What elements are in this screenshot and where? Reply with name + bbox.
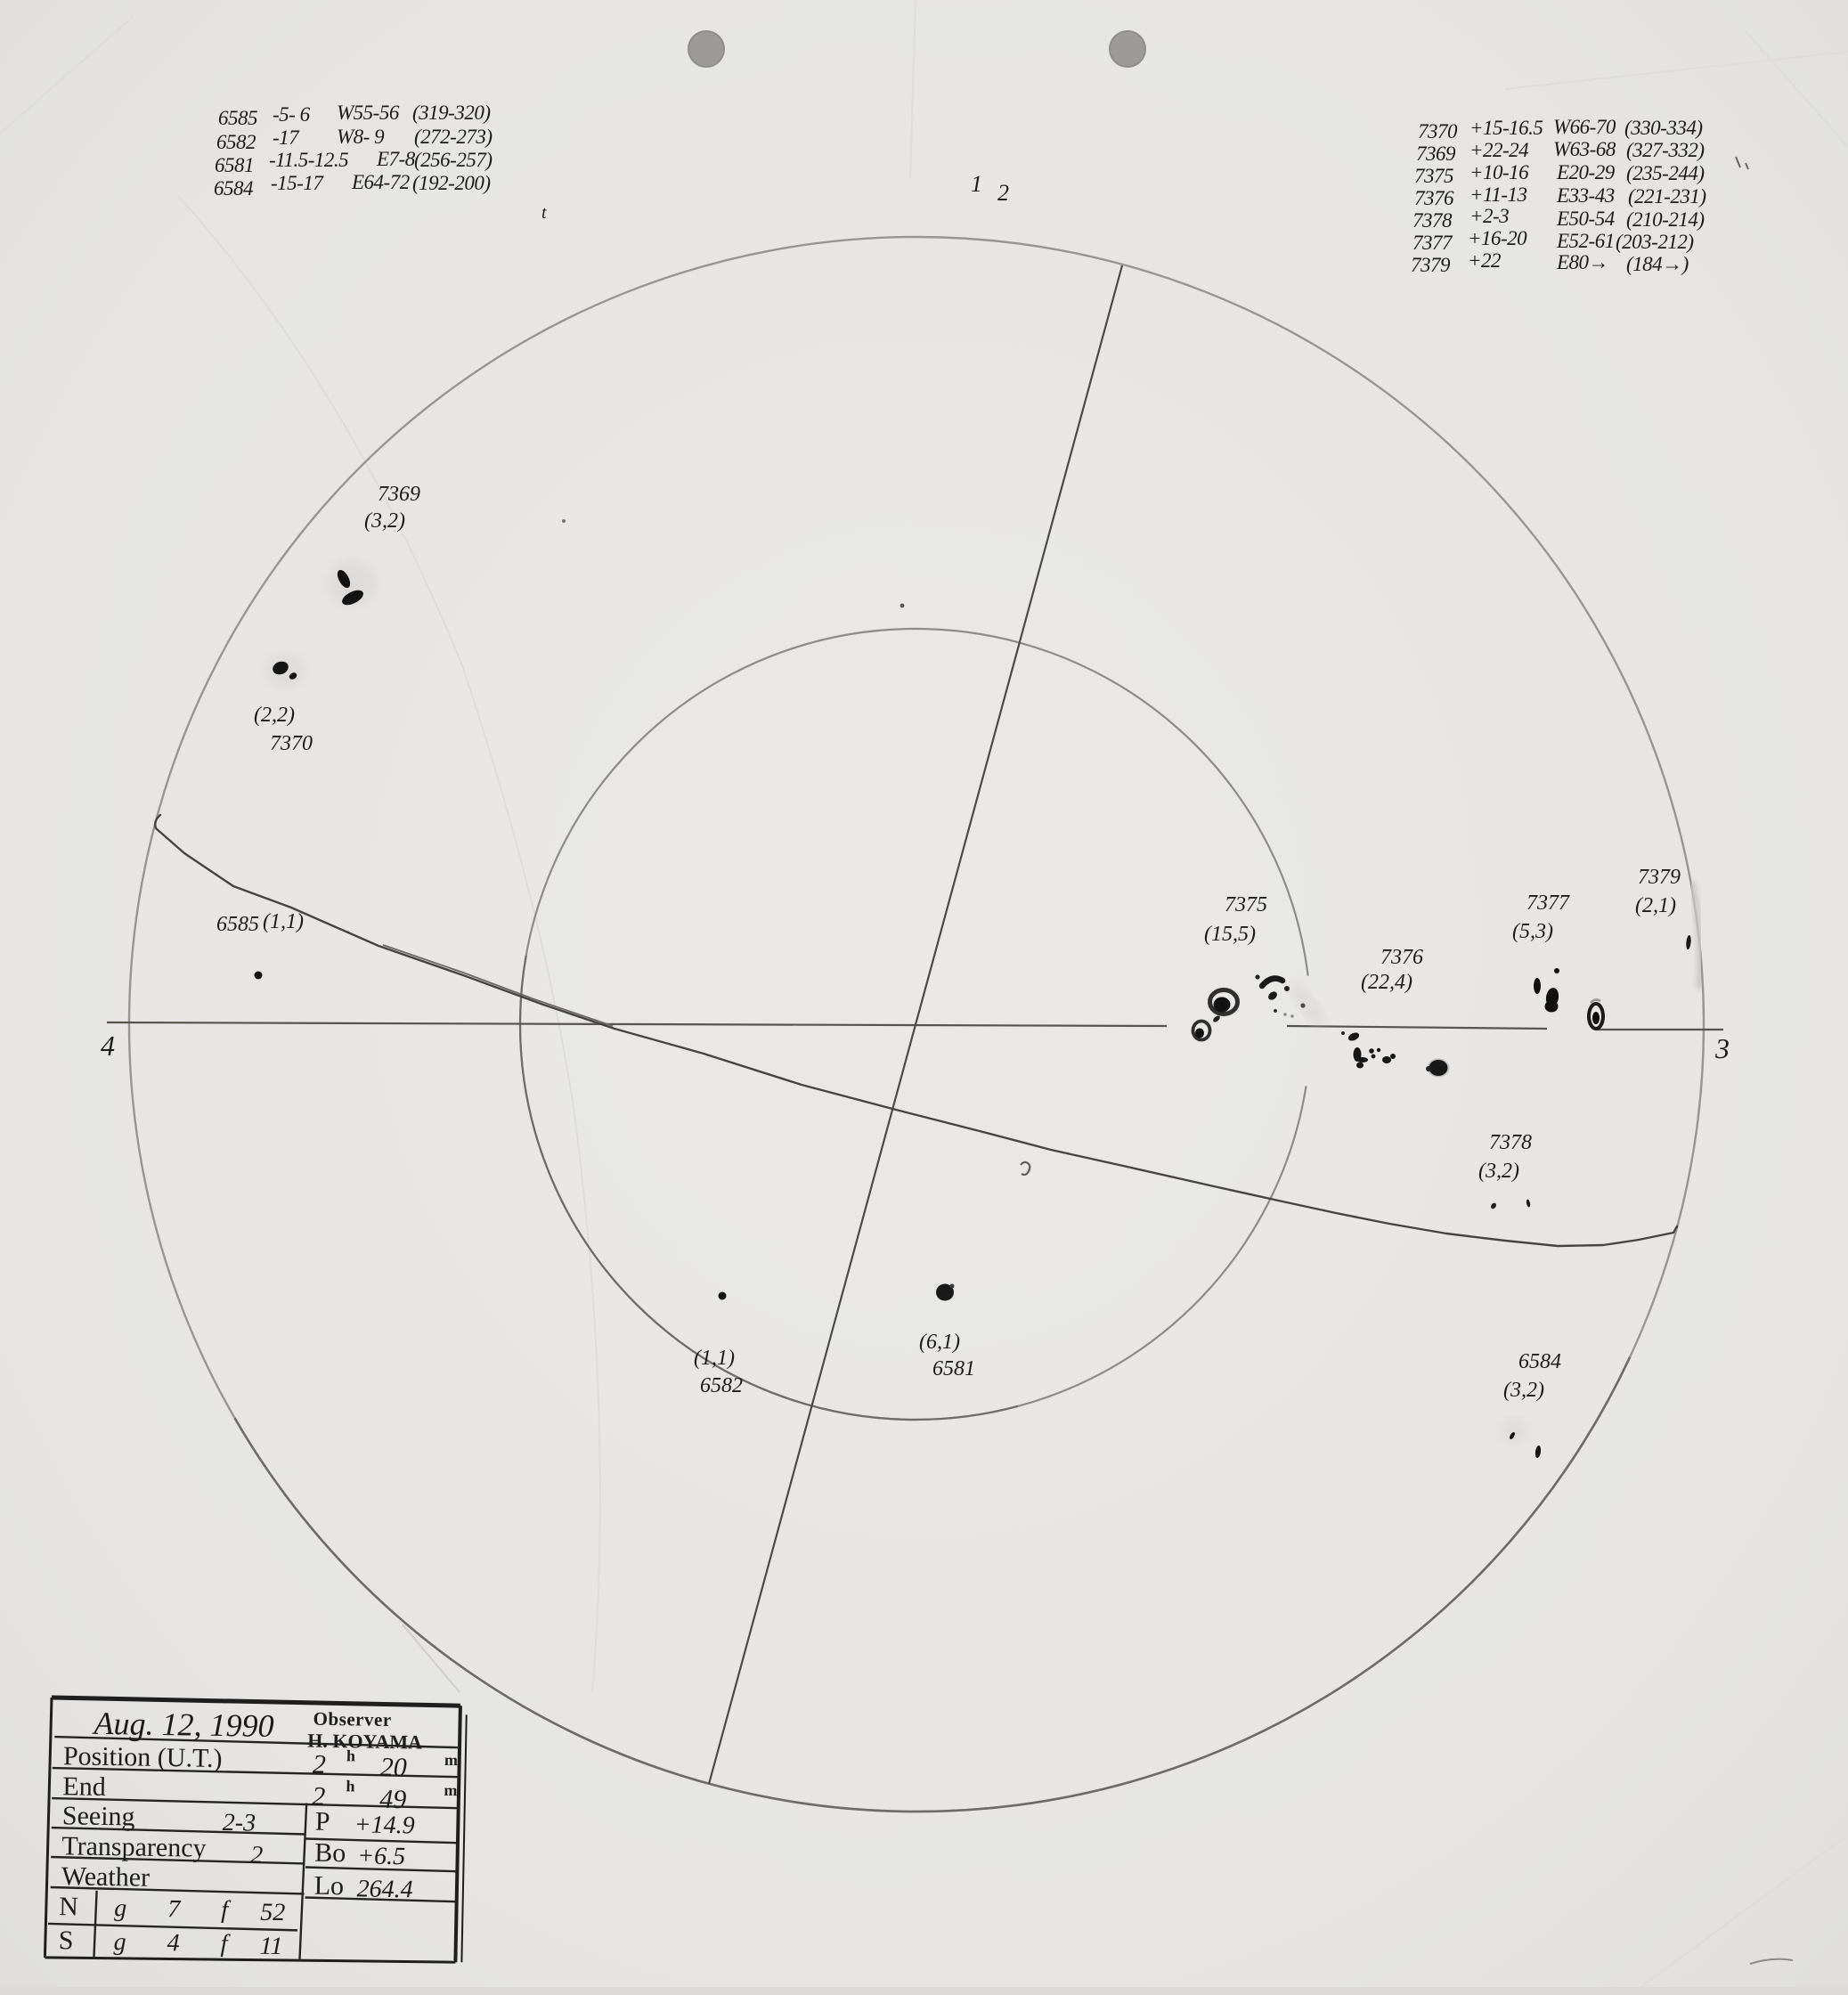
svg-text:N: N: [59, 1892, 78, 1921]
svg-text:7379: 7379: [1411, 254, 1451, 276]
svg-text:Aug. 12, 1990: Aug. 12, 1990: [92, 1706, 274, 1744]
svg-text:+15-16.5: +15-16.5: [1469, 117, 1543, 139]
svg-text:W8- 9: W8- 9: [337, 126, 385, 148]
svg-text:1: 1: [971, 171, 982, 197]
svg-text:(15,5): (15,5): [1204, 923, 1256, 946]
svg-text:(5,3): (5,3): [1512, 920, 1553, 943]
svg-text:(210-214): (210-214): [1626, 208, 1704, 231]
svg-text:49: 49: [379, 1785, 407, 1814]
svg-text:P: P: [315, 1807, 330, 1836]
svg-text:6585: 6585: [216, 913, 259, 936]
svg-text:(184→): (184→): [1626, 253, 1689, 275]
svg-text:End: End: [62, 1771, 106, 1802]
svg-text:7375: 7375: [1414, 165, 1453, 187]
svg-text:Lo: Lo: [313, 1871, 344, 1901]
svg-text:(2,2): (2,2): [254, 704, 295, 727]
svg-text:+6.5: +6.5: [357, 1842, 405, 1870]
svg-text:2-3: 2-3: [223, 1809, 256, 1837]
svg-text:7370: 7370: [270, 732, 313, 755]
svg-text:3: 3: [1714, 1032, 1730, 1064]
svg-text:7378: 7378: [1489, 1131, 1532, 1154]
svg-text:E52-61: E52-61: [1556, 230, 1615, 252]
svg-text:7: 7: [167, 1895, 181, 1923]
svg-text:Position (U.T.): Position (U.T.): [63, 1741, 223, 1773]
svg-text:7378: 7378: [1412, 209, 1453, 232]
svg-text:E64-72: E64-72: [351, 171, 410, 193]
svg-text:E20-29: E20-29: [1556, 161, 1616, 183]
svg-text:(192-200): (192-200): [412, 172, 490, 194]
svg-text:6584: 6584: [214, 177, 253, 199]
svg-text:m: m: [444, 1781, 457, 1799]
svg-text:g: g: [113, 1928, 126, 1956]
svg-text:(327-332): (327-332): [1626, 139, 1704, 161]
svg-text:Weather: Weather: [61, 1861, 151, 1893]
svg-text:6582: 6582: [700, 1374, 743, 1397]
svg-text:6581: 6581: [215, 154, 254, 176]
svg-text:(221-231): (221-231): [1628, 185, 1706, 208]
svg-text:S: S: [58, 1926, 73, 1955]
svg-text:(235-244): (235-244): [1626, 162, 1704, 184]
svg-text:h: h: [346, 1747, 355, 1764]
svg-text:(203-212): (203-212): [1616, 231, 1693, 253]
svg-text:(330-334): (330-334): [1624, 117, 1702, 139]
svg-text:6584: 6584: [1518, 1350, 1561, 1373]
svg-text:7379: 7379: [1638, 866, 1681, 889]
svg-text:Seeing: Seeing: [62, 1801, 135, 1831]
svg-text:2: 2: [250, 1842, 263, 1869]
svg-text:+11-13: +11-13: [1469, 183, 1526, 206]
svg-text:7377: 7377: [1526, 892, 1570, 915]
svg-text:7369: 7369: [378, 483, 420, 506]
svg-text:+2-3: +2-3: [1469, 205, 1509, 227]
svg-text:+10-16: +10-16: [1469, 161, 1529, 183]
svg-text:(2,1): (2,1): [1635, 894, 1676, 917]
svg-text:E50-54: E50-54: [1556, 208, 1615, 230]
svg-text:7369: 7369: [1416, 142, 1456, 165]
svg-text:W66-70: W66-70: [1553, 116, 1616, 138]
svg-text:6585: 6585: [218, 107, 257, 129]
svg-text:+22: +22: [1468, 249, 1501, 272]
svg-text:52: 52: [260, 1899, 285, 1926]
svg-text:Observer: Observer: [313, 1708, 391, 1730]
svg-text:7375: 7375: [1225, 893, 1267, 916]
svg-text:(272-273): (272-273): [414, 126, 492, 148]
svg-text:(1,1): (1,1): [263, 910, 304, 933]
svg-text:(3,2): (3,2): [364, 509, 405, 533]
svg-text:20: 20: [380, 1753, 408, 1782]
svg-text:264.4: 264.4: [356, 1875, 412, 1903]
svg-text:Bo: Bo: [314, 1838, 346, 1869]
svg-text:4: 4: [101, 1030, 115, 1062]
svg-text:+16-20: +16-20: [1468, 227, 1527, 249]
svg-text:m: m: [444, 1751, 458, 1769]
svg-text:(3,2): (3,2): [1503, 1379, 1544, 1402]
svg-text:-17: -17: [273, 126, 300, 149]
svg-text:Transparency: Transparency: [61, 1831, 207, 1863]
svg-text:-5- 6: -5- 6: [273, 103, 311, 126]
svg-text:-11.5-12.5: -11.5-12.5: [269, 149, 348, 171]
svg-text:(256-257): (256-257): [414, 149, 492, 171]
svg-text:7370: 7370: [1418, 120, 1458, 142]
svg-text:4: 4: [167, 1929, 179, 1957]
svg-text:7377: 7377: [1412, 232, 1453, 254]
svg-text:7376: 7376: [1380, 946, 1423, 969]
svg-text:11: 11: [259, 1933, 282, 1960]
svg-text:-15-17: -15-17: [271, 172, 324, 194]
svg-text:7376: 7376: [1414, 187, 1454, 209]
svg-text:+14.9: +14.9: [354, 1811, 415, 1839]
svg-text:(3,2): (3,2): [1478, 1160, 1519, 1183]
svg-text:h: h: [346, 1777, 354, 1795]
svg-text:(319-320): (319-320): [412, 102, 490, 124]
svg-text:6581: 6581: [932, 1357, 975, 1380]
svg-text:W55-56: W55-56: [337, 102, 400, 124]
svg-text:+22-24: +22-24: [1469, 139, 1528, 161]
svg-text:E80→: E80→: [1556, 251, 1608, 273]
svg-text:W63-68: W63-68: [1553, 138, 1616, 160]
svg-text:6582: 6582: [216, 131, 256, 153]
svg-text:t: t: [541, 203, 547, 223]
svg-text:g: g: [114, 1894, 126, 1922]
svg-text:E7-8: E7-8: [376, 148, 416, 170]
svg-text:E33-43: E33-43: [1556, 184, 1615, 207]
svg-text:(6,1): (6,1): [919, 1331, 960, 1354]
svg-text:2: 2: [313, 1750, 327, 1779]
svg-text:(22,4): (22,4): [1361, 971, 1412, 994]
svg-text:2: 2: [997, 180, 1009, 206]
svg-text:(1,1): (1,1): [694, 1347, 735, 1370]
